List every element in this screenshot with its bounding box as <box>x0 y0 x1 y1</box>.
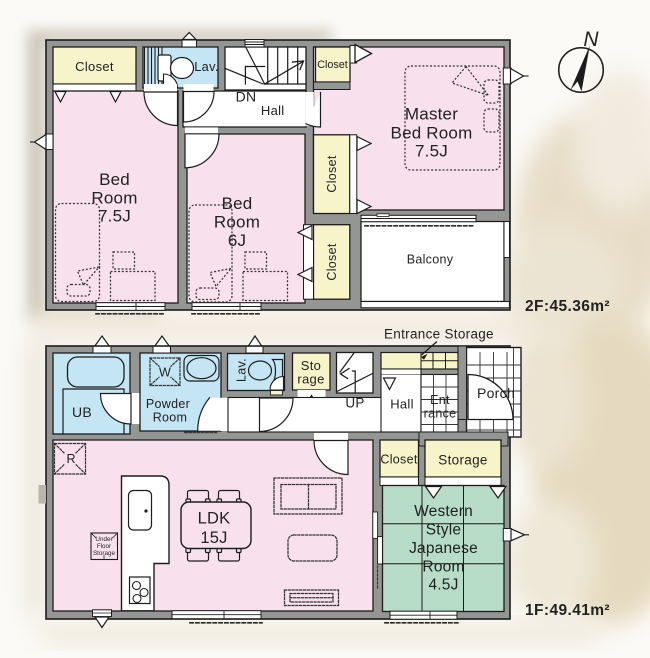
svg-text:Hall: Hall <box>390 397 414 412</box>
svg-text:Western: Western <box>414 503 473 520</box>
svg-text:Room: Room <box>422 559 464 576</box>
svg-text:Balcony: Balcony <box>407 253 454 267</box>
svg-text:Room: Room <box>91 189 137 208</box>
svg-text:Floor: Floor <box>97 543 111 550</box>
svg-text:Closet: Closet <box>325 155 339 192</box>
svg-text:7.5J: 7.5J <box>98 207 131 226</box>
svg-text:rance: rance <box>424 407 457 421</box>
svg-text:6J: 6J <box>228 231 246 250</box>
svg-text:Bed Room: Bed Room <box>391 124 473 143</box>
svg-text:Powder: Powder <box>146 397 190 411</box>
svg-text:Room: Room <box>153 411 188 425</box>
svg-text:Entrance Storage: Entrance Storage <box>384 327 494 342</box>
svg-text:rage: rage <box>297 372 324 387</box>
svg-text:Style: Style <box>426 522 461 539</box>
svg-text:Porch: Porch <box>477 385 515 401</box>
svg-text:Master: Master <box>405 105 458 124</box>
svg-text:Japanese: Japanese <box>409 540 478 557</box>
svg-text:UP: UP <box>345 396 364 411</box>
svg-text:W: W <box>159 366 171 380</box>
svg-text:Closet: Closet <box>325 243 339 280</box>
svg-text:Lav.: Lav. <box>194 59 218 74</box>
svg-text:Hall: Hall <box>261 103 285 118</box>
svg-text:Closet: Closet <box>380 453 417 467</box>
svg-text:Bed: Bed <box>222 194 253 213</box>
svg-text:Ent: Ent <box>430 393 450 407</box>
svg-text:Room: Room <box>214 213 260 232</box>
svg-text:1F:49.41m²: 1F:49.41m² <box>525 602 610 619</box>
svg-text:2F:45.36m²: 2F:45.36m² <box>525 298 610 315</box>
svg-text:7.5J: 7.5J <box>415 142 448 161</box>
svg-text:Storage: Storage <box>93 550 116 557</box>
svg-text:N: N <box>583 28 599 51</box>
svg-text:DN: DN <box>236 89 257 105</box>
svg-text:LDK: LDK <box>198 510 231 528</box>
svg-text:Closet: Closet <box>317 59 348 71</box>
svg-text:15J: 15J <box>200 529 227 547</box>
svg-text:R: R <box>67 452 76 466</box>
svg-text:Storage: Storage <box>438 453 487 468</box>
svg-text:Closet: Closet <box>75 59 114 74</box>
svg-text:Under: Under <box>95 536 112 543</box>
svg-text:4.5J: 4.5J <box>428 577 458 594</box>
svg-text:Lav.: Lav. <box>235 358 249 382</box>
svg-text:Bed: Bed <box>99 170 130 189</box>
svg-text:UB: UB <box>72 404 92 420</box>
